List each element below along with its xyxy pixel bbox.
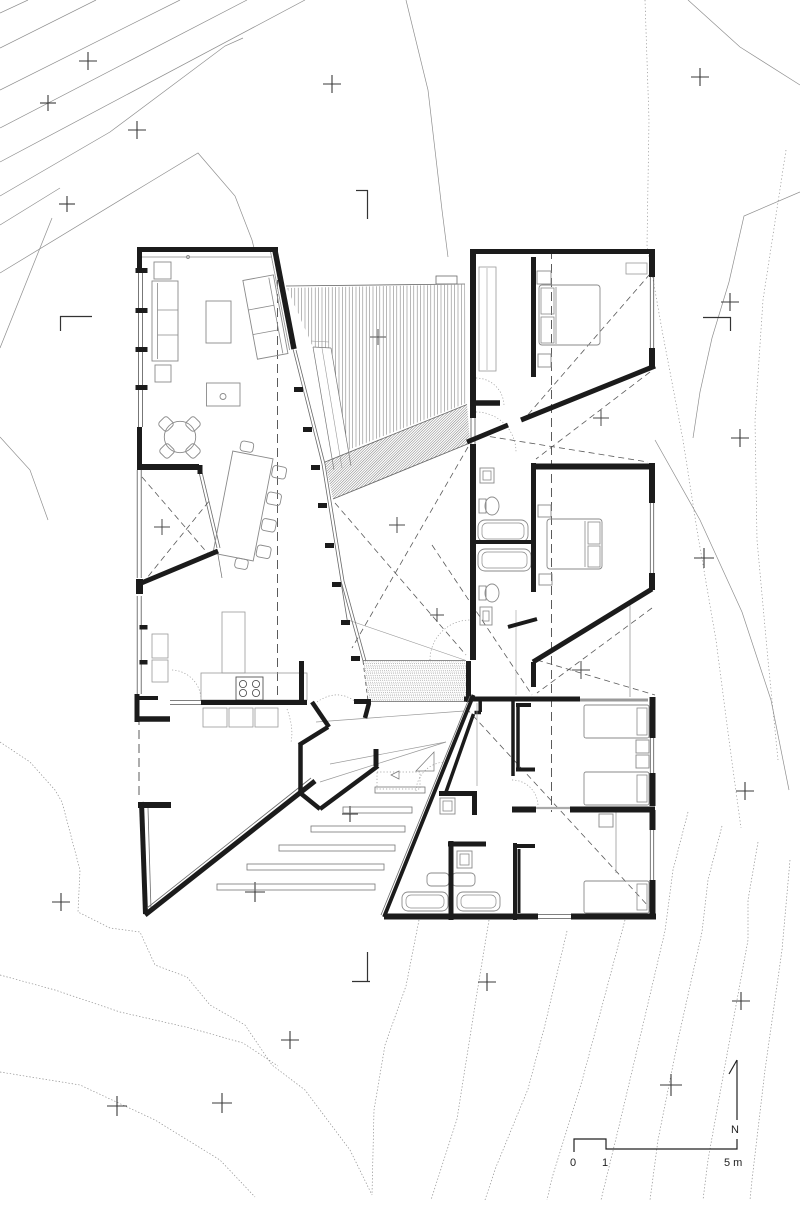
svg-text:1: 1 [602, 1157, 608, 1169]
svg-text:0: 0 [570, 1157, 576, 1169]
svg-text:N: N [731, 1124, 739, 1136]
svg-text:5 m: 5 m [724, 1157, 742, 1169]
